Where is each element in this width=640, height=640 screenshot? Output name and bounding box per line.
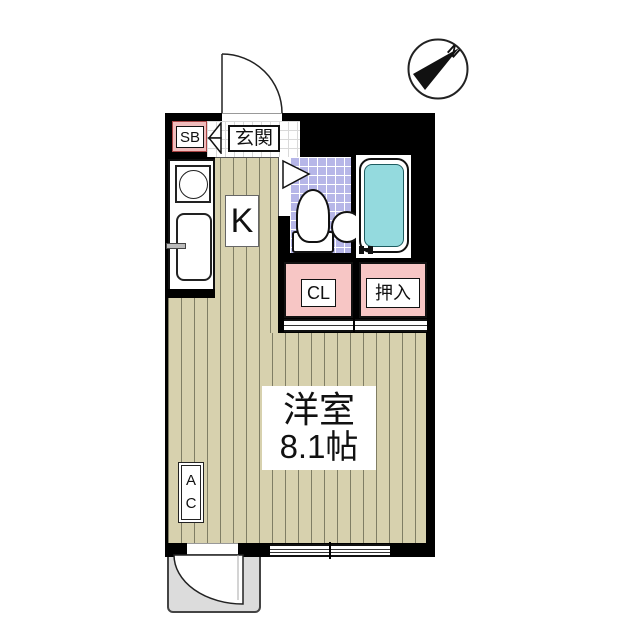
main-room-size: 8.1帖 bbox=[280, 429, 359, 465]
shoe-box-label: SB bbox=[180, 130, 200, 145]
sink-faucet-icon bbox=[166, 243, 186, 249]
main-room-label-box: 洋室 8.1帖 bbox=[262, 386, 376, 470]
bathtub-water bbox=[364, 164, 404, 247]
sliding-door-icon bbox=[284, 319, 427, 332]
closet-oshiire-label-box: 押入 bbox=[366, 278, 420, 308]
floor-left-strip bbox=[168, 298, 215, 333]
tub-faucet-icon bbox=[356, 243, 378, 257]
bifold-door-icon bbox=[207, 122, 223, 154]
shoe-box-label-box: SB bbox=[176, 126, 204, 148]
closet-cl-label-box: CL bbox=[301, 279, 336, 307]
toilet-icon bbox=[296, 189, 330, 243]
sliding-door-divider bbox=[353, 319, 355, 332]
shoe-box: SB bbox=[172, 121, 207, 152]
bathroom-door-wedge-icon bbox=[281, 159, 311, 191]
porch-door-arc-icon bbox=[172, 554, 246, 608]
genkan-label-box: 玄関 bbox=[228, 125, 280, 152]
main-room-name: 洋室 bbox=[283, 391, 355, 429]
genkan-label: 玄関 bbox=[235, 129, 273, 148]
closet-oshiire-label: 押入 bbox=[375, 284, 411, 302]
kitchen-counter-end-wall bbox=[168, 289, 215, 298]
kitchen-label-box: K bbox=[225, 195, 259, 247]
stove-icon bbox=[175, 165, 211, 203]
ac-label: AC bbox=[185, 470, 197, 515]
kitchen-label: K bbox=[231, 204, 254, 238]
compass-icon: N bbox=[405, 36, 471, 102]
entrance-door-arc-icon bbox=[218, 51, 286, 115]
floorplan: N SB 玄関 bbox=[0, 0, 640, 640]
window-center-tick bbox=[329, 542, 331, 559]
ac-unit: AC bbox=[178, 462, 204, 523]
closet-cl-label: CL bbox=[307, 284, 330, 302]
